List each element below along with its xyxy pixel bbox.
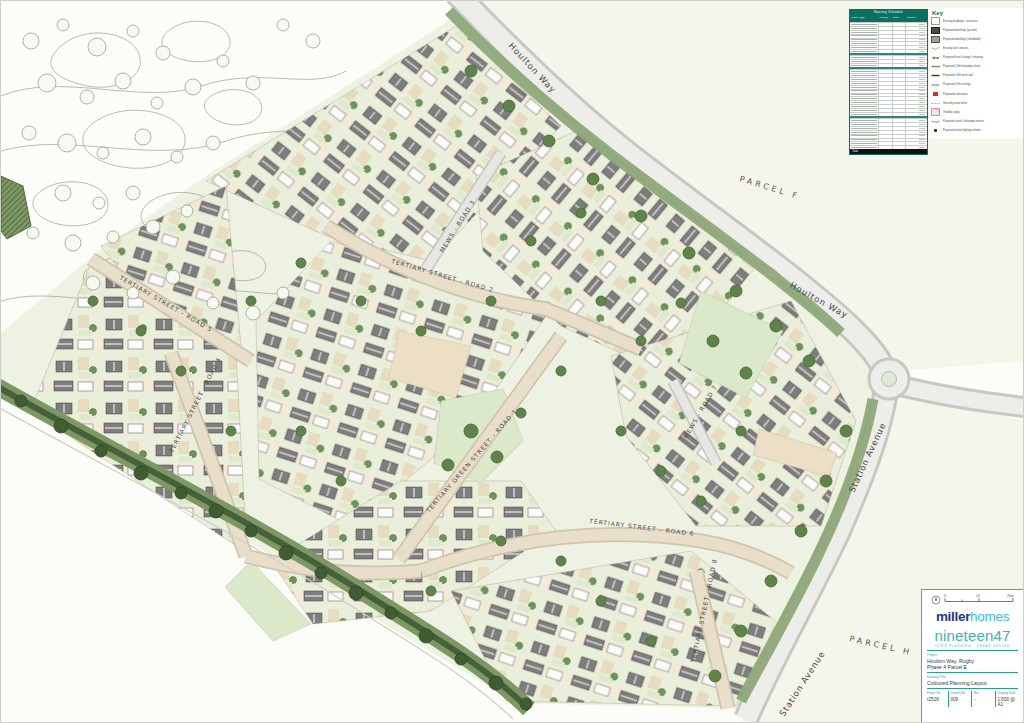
tree-icon bbox=[226, 426, 236, 436]
tree-icon bbox=[54, 419, 68, 433]
tree-icon bbox=[296, 258, 306, 268]
tree-icon bbox=[88, 38, 106, 56]
tree-icon bbox=[683, 247, 695, 259]
tree-icon bbox=[740, 367, 752, 379]
tree-icon bbox=[107, 231, 119, 243]
drawing-title-label: Drawing Title bbox=[927, 675, 1018, 679]
tree-icon bbox=[356, 296, 366, 306]
tree-icon bbox=[86, 276, 100, 290]
tree-icon bbox=[820, 475, 832, 487]
tree-icon bbox=[616, 426, 626, 436]
key-item: Visibility splay bbox=[931, 109, 1024, 116]
visibility-splay-icon bbox=[931, 109, 940, 116]
tree-icon bbox=[246, 306, 260, 320]
key-item: Proposed swale / drainage feature bbox=[931, 118, 1024, 125]
tree-icon bbox=[88, 296, 98, 306]
tree-icon bbox=[217, 55, 229, 67]
tree-icon bbox=[27, 227, 39, 239]
drawing-info-fields: Project No. r2528 Drawing No 009 Rev - D… bbox=[927, 691, 1018, 707]
tree-icon bbox=[176, 366, 186, 376]
tree-icon bbox=[134, 466, 148, 480]
tree-icon bbox=[58, 134, 76, 152]
tree-icon bbox=[707, 335, 719, 347]
roundabout bbox=[869, 359, 909, 399]
tree-icon bbox=[97, 147, 109, 159]
tree-icon bbox=[246, 296, 256, 306]
project-name: Houlton Way, Rugby Phase 4 Parcel E bbox=[927, 658, 1018, 670]
tree-icon bbox=[465, 65, 477, 77]
schedule-col-storeys: Storeys bbox=[878, 17, 892, 20]
tree-icon bbox=[207, 297, 219, 309]
tree-icon bbox=[22, 126, 36, 140]
scale-zero: 0 bbox=[944, 594, 946, 598]
tree-icon bbox=[730, 285, 742, 297]
key-legend: Key Existing buildings / structures Prop… bbox=[929, 8, 1024, 139]
tree-icon bbox=[416, 326, 426, 336]
tree-icon bbox=[171, 151, 183, 163]
key-item: Shared private drive bbox=[931, 100, 1024, 107]
tree-icon bbox=[496, 536, 506, 546]
tree-icon bbox=[520, 698, 532, 710]
tree-icon bbox=[151, 97, 163, 109]
railing-icon bbox=[931, 82, 940, 89]
tree-icon bbox=[426, 586, 436, 596]
tree-icon bbox=[636, 336, 646, 346]
tree-icon bbox=[127, 25, 139, 37]
tree-icon bbox=[646, 636, 656, 646]
tree-icon bbox=[55, 185, 71, 201]
existing-contour-icon bbox=[931, 45, 940, 52]
tree-icon bbox=[556, 556, 566, 566]
tree-icon bbox=[803, 355, 815, 367]
tree-icon bbox=[455, 653, 467, 665]
tree-icon bbox=[296, 426, 306, 436]
tree-icon bbox=[656, 466, 666, 476]
tree-icon bbox=[245, 525, 257, 537]
key-item: Proposed level change / retaining bbox=[931, 54, 1024, 61]
tree-icon bbox=[696, 496, 706, 506]
street-light-icon bbox=[931, 127, 940, 134]
tree-icon bbox=[840, 425, 852, 437]
tree-icon bbox=[38, 74, 56, 92]
tree-icon bbox=[246, 76, 260, 90]
schedule-col-house-type: House Type bbox=[850, 17, 878, 20]
tree-icon bbox=[419, 629, 433, 643]
tree-icon bbox=[93, 197, 105, 209]
tree-icon bbox=[306, 34, 320, 48]
key-item: Existing buildings / structures bbox=[931, 18, 1024, 25]
tree-icon bbox=[175, 487, 187, 499]
tree-icon bbox=[543, 135, 555, 147]
tree-icon bbox=[315, 567, 327, 579]
tree-icon bbox=[596, 296, 606, 306]
title-block: 0 10 20m millerhomes nineteen47 · TOWN P… bbox=[921, 589, 1024, 723]
project-label: Project bbox=[927, 653, 1018, 657]
level-change-icon bbox=[931, 54, 940, 61]
tree-icon bbox=[206, 136, 220, 150]
tree-icon bbox=[735, 625, 747, 637]
tree-icon bbox=[336, 476, 346, 486]
field-drawing-no: Drawing No 009 bbox=[948, 691, 972, 707]
schedule-header-row: House Type Storeys Beds Number bbox=[850, 15, 927, 22]
tree-icon bbox=[486, 296, 496, 306]
tree-icon bbox=[770, 320, 782, 332]
tree-icon bbox=[442, 459, 454, 471]
tree-icon bbox=[185, 79, 201, 95]
tree-icon bbox=[765, 575, 777, 587]
tree-icon bbox=[556, 366, 566, 376]
field-scale: Drawing Scale 1:500 @ A1 bbox=[995, 691, 1019, 707]
tree-icon bbox=[65, 235, 81, 251]
tree-icon bbox=[115, 73, 131, 89]
tree-icon bbox=[489, 676, 503, 690]
tree-icon bbox=[136, 326, 146, 336]
scale-mid: 10 bbox=[976, 594, 980, 598]
tree-icon bbox=[181, 205, 193, 217]
tree-icon bbox=[526, 236, 536, 246]
tree-icon bbox=[126, 186, 140, 200]
field-project-no: Project No. r2528 bbox=[927, 691, 948, 707]
schedule-body bbox=[850, 22, 927, 149]
tree-icon bbox=[385, 607, 397, 619]
tree-icon bbox=[464, 424, 478, 438]
drawing-title: Coloured Planning Layout bbox=[927, 680, 1018, 686]
tree-icon bbox=[95, 445, 107, 457]
tree-icon bbox=[166, 270, 180, 284]
shared-drive-icon bbox=[931, 100, 940, 107]
wall-icon bbox=[931, 73, 940, 80]
tree-icon bbox=[23, 33, 39, 49]
planning-drawing-sheet: Houlton Way Houlton Way Station Avenue S… bbox=[0, 0, 1024, 723]
tree-icon bbox=[15, 395, 27, 407]
existing-building-icon bbox=[931, 18, 940, 25]
key-item: Proposed 1.8m boundary fence bbox=[931, 63, 1024, 70]
schedule-col-beds: Beds bbox=[892, 17, 906, 20]
schedule-total-row: Total bbox=[850, 149, 927, 154]
fence-icon bbox=[931, 63, 940, 70]
tree-icon bbox=[209, 504, 223, 518]
tree-icon bbox=[277, 19, 289, 31]
nineteen47-tagline: · TOWN PLANNING · URBAN DESIGN · bbox=[927, 645, 1018, 648]
key-item: Existing site contours bbox=[931, 45, 1024, 52]
tree-icon bbox=[587, 173, 599, 185]
tree-icon bbox=[635, 210, 647, 222]
tree-icon bbox=[135, 129, 151, 145]
affordable-dwelling-icon bbox=[931, 36, 940, 43]
swale-icon bbox=[931, 118, 940, 125]
key-title: Key bbox=[932, 10, 1024, 16]
substation-icon bbox=[931, 91, 940, 98]
key-item: Proposed substation bbox=[931, 91, 1024, 98]
key-item: Proposed dwellings (private) bbox=[931, 27, 1024, 34]
tree-icon bbox=[491, 451, 503, 463]
key-item: Proposed 1.8m brick wall bbox=[931, 73, 1024, 80]
tree-icon bbox=[57, 19, 69, 31]
schedule-col-number: Number bbox=[906, 17, 927, 20]
housing-schedule-table: Housing Schedule House Type Storeys Beds… bbox=[849, 9, 928, 155]
key-item: Proposed dwellings (affordable) bbox=[931, 36, 1024, 43]
private-dwelling-icon bbox=[931, 27, 940, 34]
miller-homes-logo: millerhomes bbox=[927, 609, 1018, 624]
tree-icon bbox=[349, 586, 363, 600]
tree-icon bbox=[146, 220, 160, 234]
tree-icon bbox=[277, 287, 289, 299]
scale-bar: 0 10 20m bbox=[929, 593, 1017, 606]
tree-icon bbox=[709, 670, 721, 682]
tree-icon bbox=[795, 525, 807, 537]
key-item: Proposed 0.9m railings bbox=[931, 82, 1024, 89]
key-item: Proposed street lighting column bbox=[931, 127, 1024, 134]
schedule-total-label: Total bbox=[852, 149, 858, 153]
tree-icon bbox=[279, 546, 293, 560]
nineteen47-logo: nineteen47 · TOWN PLANNING · URBAN DESIG… bbox=[927, 627, 1018, 648]
tree-icon bbox=[156, 46, 170, 60]
tree-icon bbox=[736, 426, 746, 436]
tree-icon bbox=[80, 90, 94, 104]
tree-icon bbox=[676, 298, 686, 308]
tree-icon bbox=[576, 208, 586, 218]
scale-end: 20m bbox=[1007, 594, 1014, 598]
tree-icon bbox=[503, 100, 515, 112]
tree-icon bbox=[596, 596, 606, 606]
field-rev: Rev - bbox=[971, 691, 995, 707]
tree-icon bbox=[516, 408, 526, 418]
